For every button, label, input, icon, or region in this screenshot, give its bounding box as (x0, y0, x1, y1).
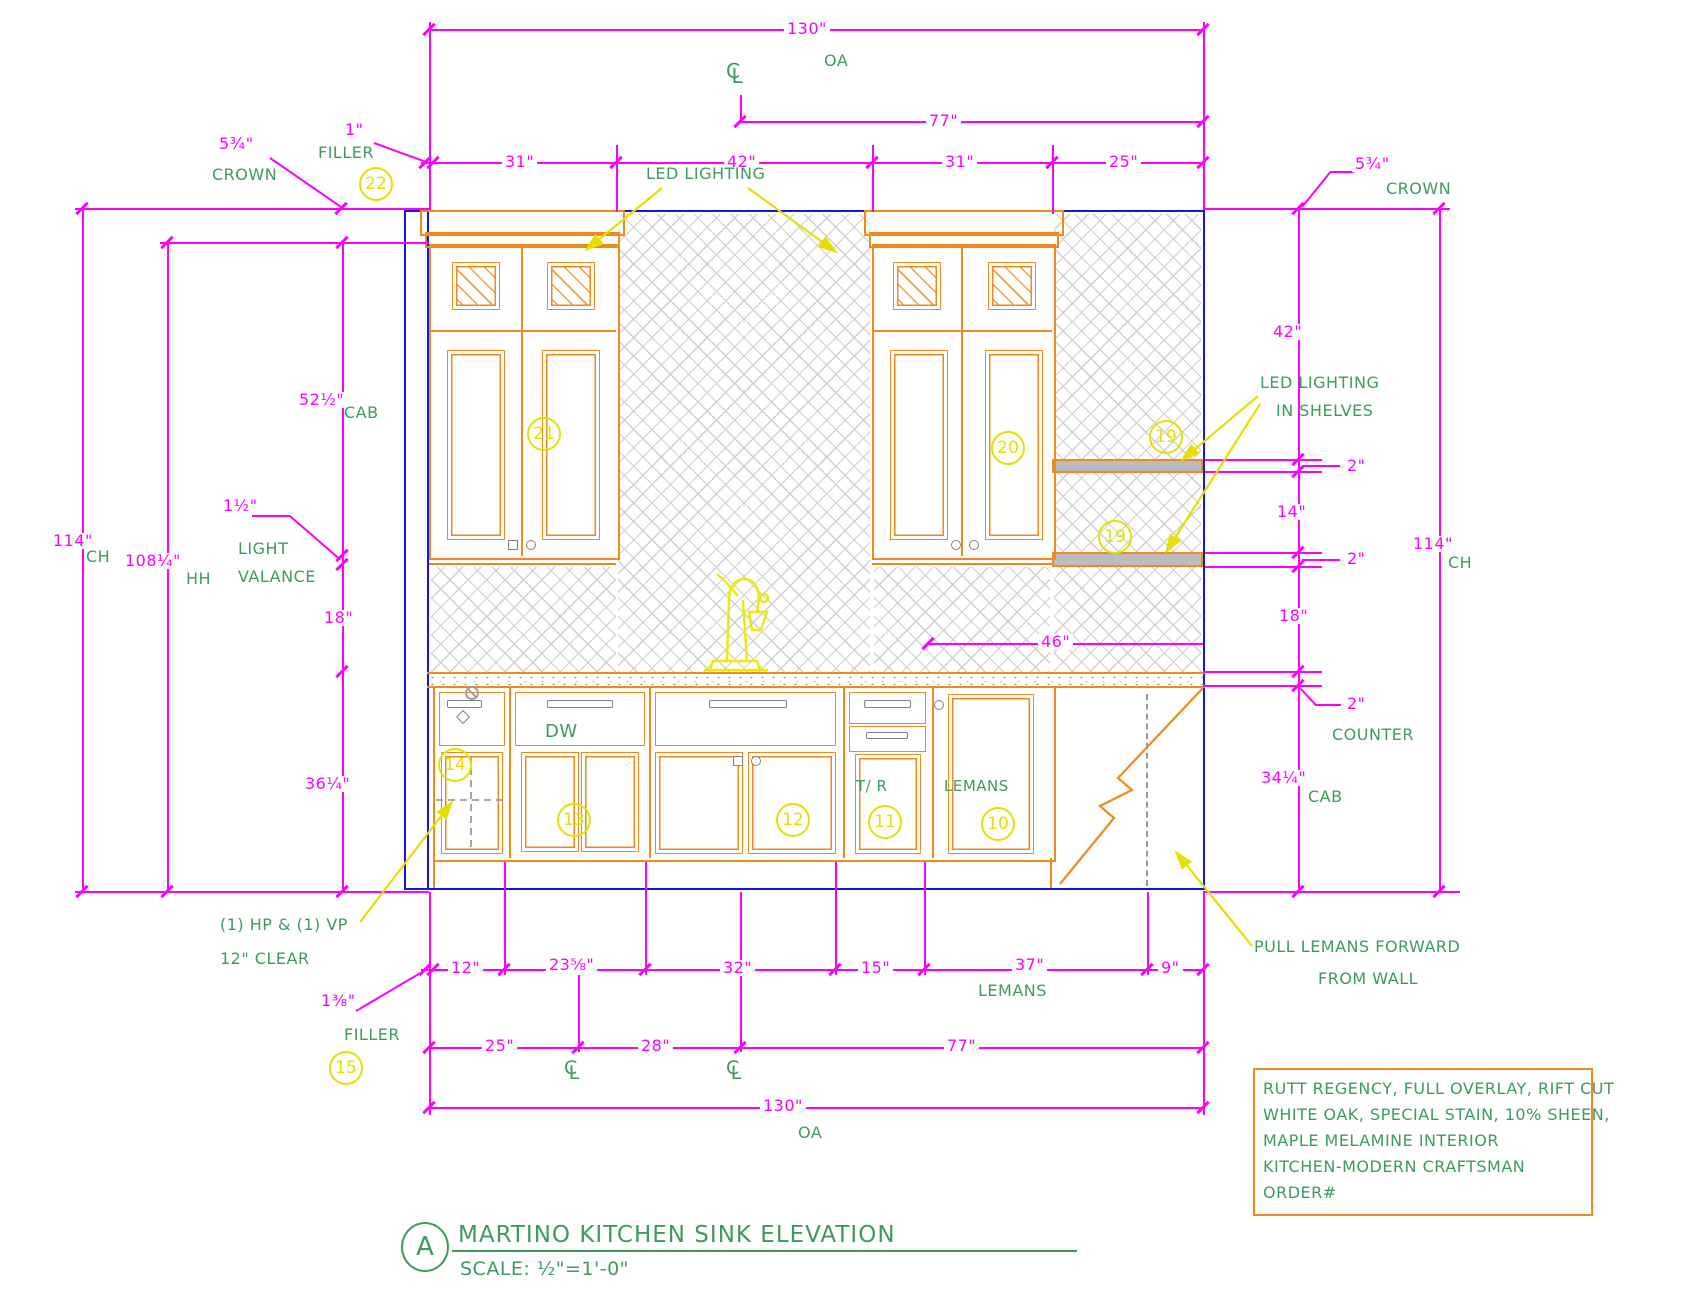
glass-door-panel (547, 262, 595, 310)
dim-filler-top: 1" (342, 122, 367, 138)
drawer-handle (709, 700, 787, 708)
dim-15-bottom: 15" (858, 960, 893, 976)
led-shelves-label-2: IN SHELVES (1276, 402, 1373, 420)
ext-line (616, 145, 618, 212)
led-shelf-upper (1052, 459, 1203, 473)
door-knob (733, 756, 743, 766)
filler-label-bottom: FILLER (344, 1026, 400, 1044)
trash-recycle-door (855, 754, 921, 854)
dim-25-bottom: 25" (482, 1038, 517, 1054)
led-shelves-label-1: LED LIGHTING (1260, 374, 1379, 392)
base-divider (843, 686, 845, 858)
clear-label: 12" CLEAR (220, 950, 310, 968)
dishwasher-panel (581, 752, 639, 852)
leader (252, 515, 290, 517)
dim-42-right: 42" (1270, 324, 1305, 340)
ext-line (578, 975, 580, 1052)
dim-77-bottom: 77" (944, 1038, 979, 1054)
dim-crown-right: 5¾" (1352, 156, 1393, 172)
lemans-dim-label: LEMANS (978, 982, 1047, 1000)
led-lighting-label: LED LIGHTING (646, 165, 765, 183)
ext-line (1203, 671, 1322, 673)
drawer-front (849, 726, 926, 752)
pull-lemans-label-1: PULL LEMANS FORWARD (1254, 938, 1460, 956)
hh-label-left: HH (186, 570, 211, 588)
door-knob (526, 540, 536, 550)
dim-line (82, 209, 84, 892)
filler-label-top: FILLER (318, 144, 374, 162)
ext-line (75, 208, 429, 210)
kitchen-elevation-drawing: 130" 77" 31" 42" 31" 25" 5¾" 1" 52½" 1½"… (0, 0, 1696, 1304)
wall-plane-dashed-line (1146, 694, 1148, 886)
centerline-symbol-top: CL (726, 60, 743, 83)
callout-19b: 19 (1098, 520, 1132, 554)
ext-line (1052, 145, 1054, 214)
ext-line (1147, 892, 1149, 975)
ext-line (645, 862, 647, 975)
dim-28-bottom: 28" (638, 1038, 673, 1054)
wall-cabinet-right-rail (872, 330, 1052, 332)
ext-line (1205, 566, 1322, 568)
ch-label-right: CH (1448, 554, 1472, 572)
door-knob (969, 540, 979, 550)
callout-19a: 19 (1149, 420, 1183, 454)
cab-label-left: CAB (344, 404, 379, 422)
dim-130-top: 130" (784, 21, 830, 37)
pull-lemans-label-2: FROM WALL (1318, 970, 1418, 988)
ext-line (835, 862, 837, 975)
led-shelf-lower (1052, 552, 1203, 567)
dim-2-counter: 2" (1344, 696, 1369, 712)
drawer-front (849, 692, 926, 724)
dim-108-left: 108¼" (122, 553, 184, 569)
drawer-handle (547, 700, 613, 708)
ext-line (1203, 685, 1322, 687)
crown-label-left: CROWN (212, 166, 277, 184)
dim-line (421, 969, 1203, 971)
dim-18-right: 18" (1276, 608, 1311, 624)
door-knob (934, 700, 944, 710)
dim-filler-bottom: 1⅜" (318, 993, 359, 1009)
toe-kick-right (1050, 858, 1052, 888)
lemans-cabinet-label: LEMANS (944, 778, 1009, 795)
dim-14-right: 14" (1274, 504, 1309, 520)
glass-door-panel (988, 262, 1036, 310)
wall-right-line (1203, 210, 1205, 890)
wall-left-line (404, 210, 406, 890)
ext-line (872, 145, 874, 212)
base-divider (509, 686, 511, 858)
oa-top-label: OA (824, 52, 848, 70)
dim-valance: 1½" (220, 498, 261, 514)
callout-20: 20 (991, 431, 1025, 465)
callout-13: 13 (557, 803, 591, 837)
dim-2-shelf-b: 2" (1344, 551, 1369, 567)
wall-cabinet-left-stile (521, 244, 523, 556)
spec-line: KITCHEN-MODERN CRAFTSMAN (1263, 1154, 1583, 1180)
dim-line (342, 243, 344, 892)
base-divider (932, 686, 934, 858)
wall-cabinet-left-rail (429, 330, 616, 332)
ext-line (924, 862, 926, 975)
ext-line (1205, 459, 1322, 461)
spec-line: MAPLE MELAMINE INTERIOR (1263, 1128, 1583, 1154)
dim-crown-left: 5¾" (216, 136, 257, 152)
door-knob (751, 756, 761, 766)
sink-door (655, 752, 743, 854)
dim-34-right: 34¼" (1258, 770, 1309, 786)
backsplash-tile-under-left-cab (431, 567, 616, 672)
dim-77-top: 77" (926, 113, 961, 129)
spec-line: ORDER# (1263, 1180, 1583, 1206)
oa-bottom-label: OA (798, 1124, 822, 1142)
dim-line (429, 1047, 1203, 1049)
leader (1299, 687, 1316, 705)
base-divider (649, 686, 651, 858)
ext-line (429, 22, 431, 210)
leader (1315, 704, 1341, 706)
pull-forward-break-line (1060, 688, 1203, 884)
valance-label: VALANCE (238, 568, 316, 586)
light-label: LIGHT (238, 540, 288, 558)
dim-36-left: 36¼" (302, 776, 353, 792)
backsplash-tile-under-right-cab (874, 567, 1050, 672)
dim-37-bottom: 37" (1012, 957, 1047, 973)
callout-11: 11 (868, 805, 902, 839)
callout-12: 12 (776, 803, 810, 837)
callout-22: 22 (359, 167, 393, 201)
dim-9-bottom: 9" (1158, 960, 1183, 976)
toe-kick-left (433, 858, 435, 888)
door-knob (951, 540, 961, 550)
dim-46: 46" (1038, 634, 1073, 650)
floor-line (404, 888, 1205, 890)
dishwasher-panel (521, 752, 579, 852)
dim-31a: 31" (502, 154, 537, 170)
dim-31b: 31" (942, 154, 977, 170)
spec-line: RUTT REGENCY, FULL OVERLAY, RIFT CUT (1263, 1076, 1583, 1102)
dim-2-shelf-a: 2" (1344, 458, 1369, 474)
ext-line (1205, 552, 1322, 554)
tr-label: T/ R (856, 778, 887, 795)
ext-line (1203, 892, 1205, 1115)
leader (355, 970, 424, 1012)
dim-23-bottom: 23⅝" (546, 957, 597, 973)
wall-cabinet-right-stile (961, 244, 963, 556)
dim-130-bottom: 130" (760, 1098, 806, 1114)
dim-cab-height: 52½" (296, 392, 347, 408)
pull-lemans-arrow (1176, 852, 1252, 946)
leader (1301, 171, 1331, 207)
callout-14: 14 (438, 748, 472, 782)
glass-door-panel (893, 262, 941, 310)
spec-note-box: RUTT REGENCY, FULL OVERLAY, RIFT CUT WHI… (1253, 1068, 1593, 1216)
callout-10: 10 (981, 807, 1015, 841)
ext-line (75, 891, 429, 893)
drawer-handle (866, 732, 908, 739)
leader (1302, 465, 1340, 467)
counter-label: COUNTER (1332, 726, 1414, 744)
drawer-handle (864, 700, 911, 708)
dw-label: DW (545, 722, 578, 743)
ch-label-left: CH (86, 548, 110, 566)
spec-line: WHITE OAK, SPECIAL STAIN, 10% SHEEN, (1263, 1102, 1583, 1128)
door-knob (508, 540, 518, 550)
dim-line (421, 162, 1203, 164)
callout-15: 15 (329, 1051, 363, 1085)
hp-vp-label: (1) HP & (1) VP (220, 916, 348, 934)
dim-line (740, 121, 1203, 123)
leader (374, 142, 426, 163)
drawing-title: MARTINO KITCHEN SINK ELEVATION (458, 1222, 896, 1248)
dim-25: 25" (1106, 154, 1141, 170)
ext-line (1205, 471, 1322, 473)
elevation-tag-circle: A (401, 1222, 449, 1272)
title-underline (452, 1250, 1077, 1252)
centerline-symbol-sink: CL (726, 1058, 742, 1080)
centerline-symbol-dw: CL (564, 1058, 580, 1080)
dim-114-right: 114" (1410, 536, 1456, 552)
drawing-scale: SCALE: ½"=1'-0" (460, 1258, 629, 1280)
glass-door-panel (452, 262, 500, 310)
leader (1302, 559, 1340, 561)
door-panel (890, 350, 948, 540)
dim-32-bottom: 32" (720, 960, 755, 976)
crown-label-right: CROWN (1386, 180, 1451, 198)
ext-line (1203, 891, 1460, 893)
drawer-handle (447, 700, 482, 708)
dim-18-left: 18" (321, 610, 356, 626)
ext-line (1203, 208, 1450, 210)
leader (269, 157, 341, 207)
dim-line (429, 1107, 1203, 1109)
dim-12-bottom: 12" (448, 960, 483, 976)
ext-line (504, 862, 506, 975)
callout-21: 21 (527, 417, 561, 451)
light-valance-right (872, 563, 1052, 565)
door-panel (447, 350, 505, 540)
backsplash-tile-center (618, 214, 870, 672)
ext-line (429, 892, 431, 1115)
cab-label-right: CAB (1308, 788, 1343, 806)
leader (1330, 171, 1354, 173)
light-valance-left (429, 563, 616, 565)
leader (289, 515, 339, 558)
ext-line (160, 242, 429, 244)
